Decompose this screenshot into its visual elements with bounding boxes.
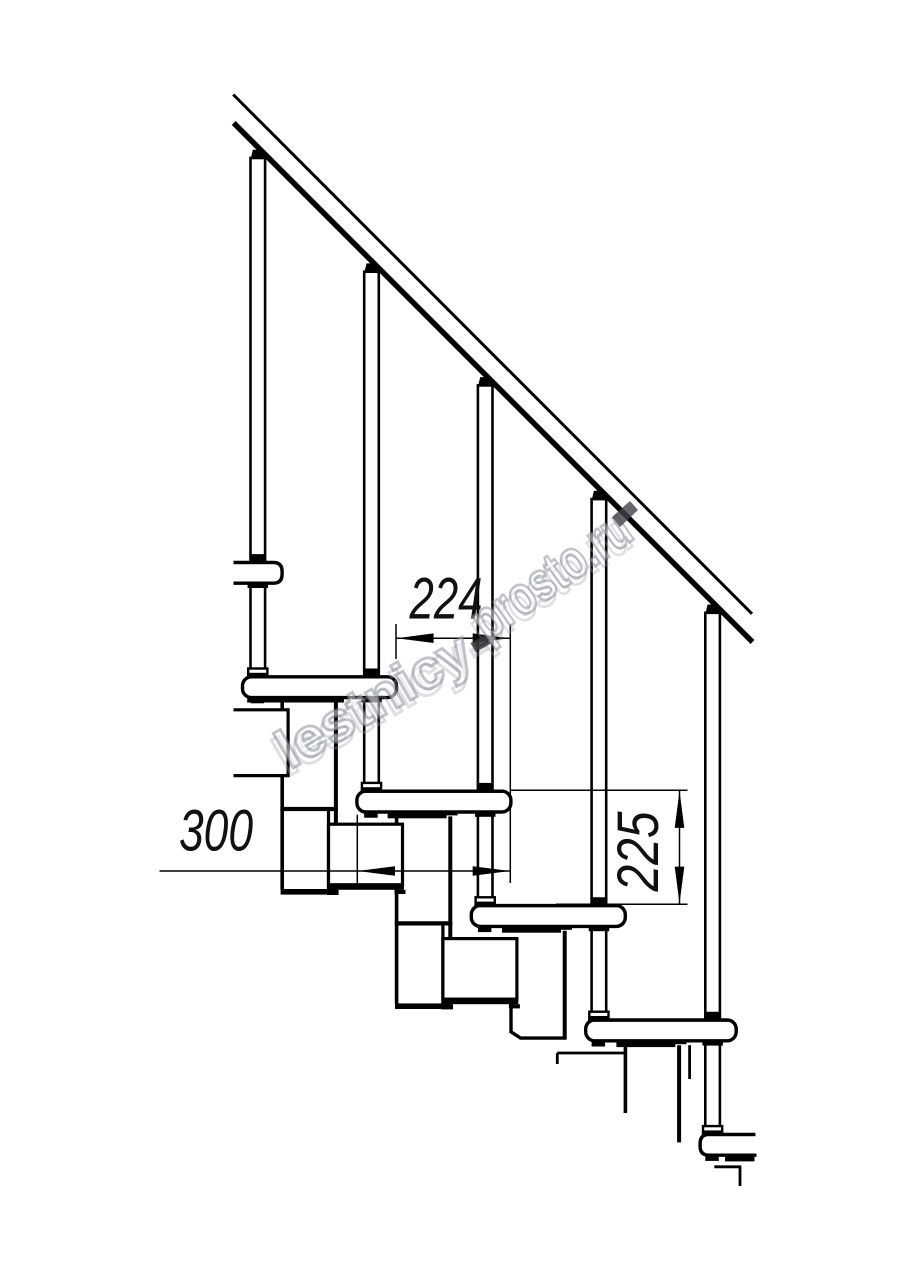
svg-text:225: 225 [606, 811, 671, 892]
svg-text:300: 300 [179, 799, 253, 864]
